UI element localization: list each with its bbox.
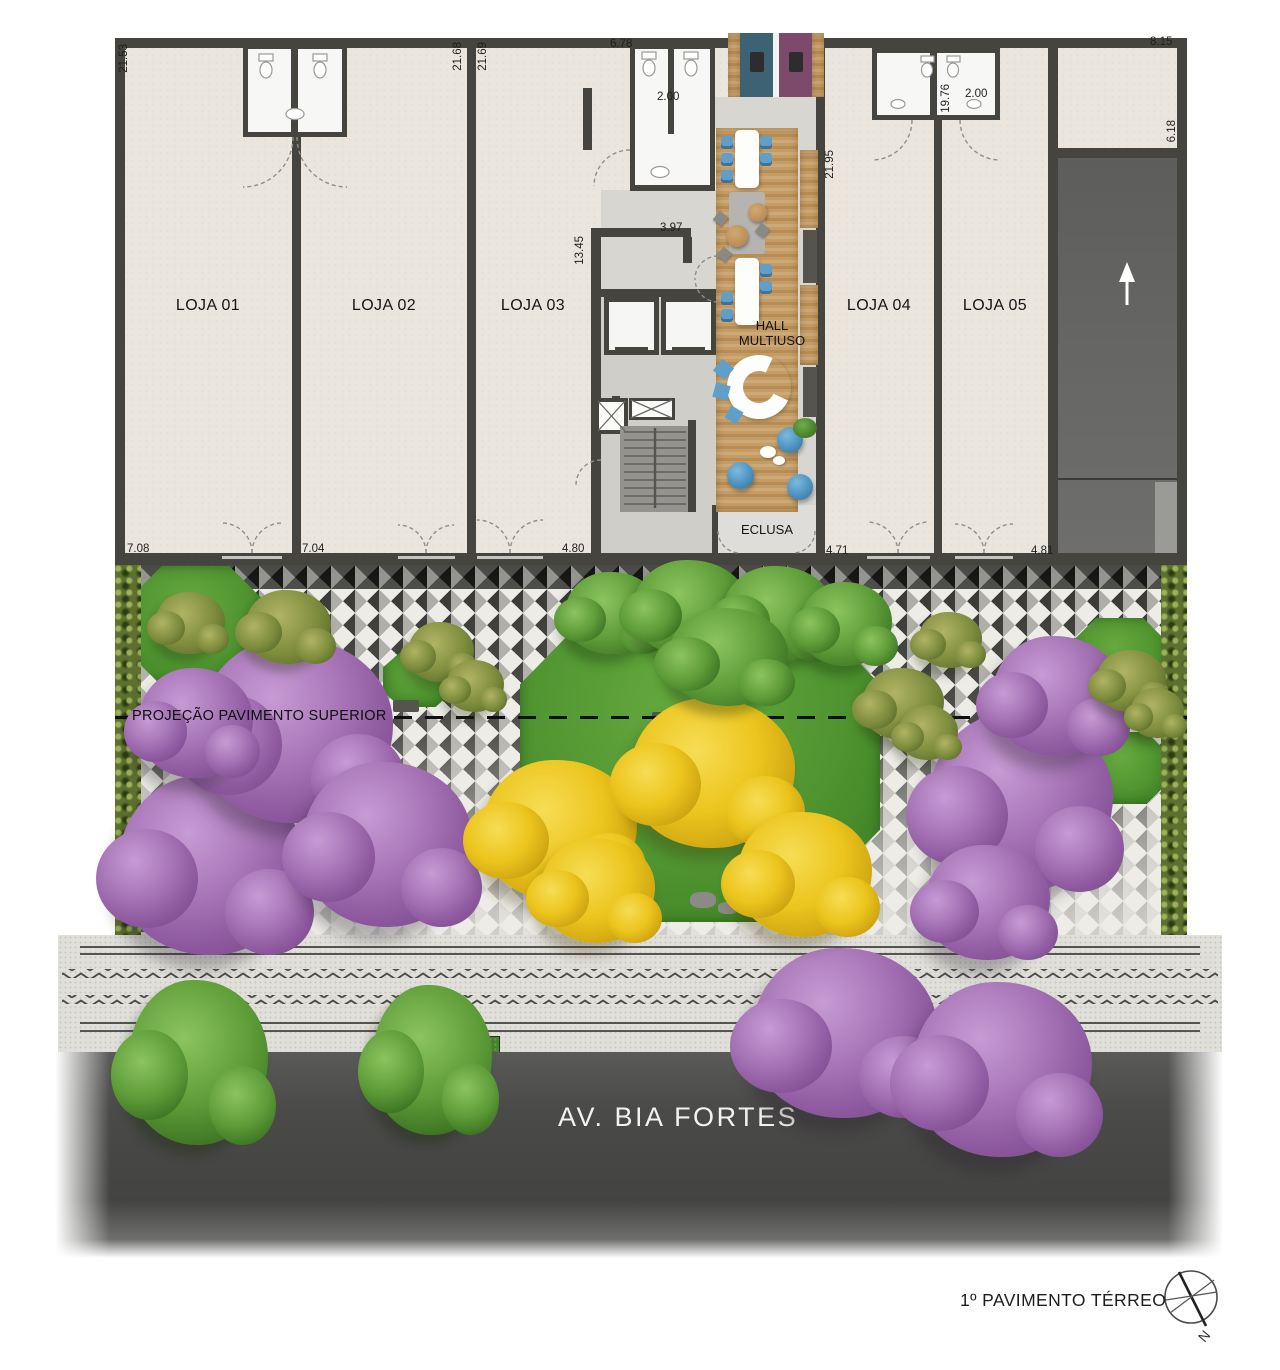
panel bbox=[803, 367, 817, 417]
chair bbox=[721, 292, 733, 305]
ramp-line bbox=[1058, 478, 1177, 480]
elevator-door bbox=[672, 347, 705, 351]
room-label-loja-03: LOJA 03 bbox=[488, 297, 578, 315]
shaft bbox=[629, 398, 675, 420]
room-label-loja-02: LOJA 02 bbox=[339, 297, 429, 315]
room-label-eclusa: ECLUSA bbox=[717, 522, 817, 537]
dimension-label: 13.45 bbox=[574, 236, 586, 265]
wall-elevator-top bbox=[601, 289, 718, 297]
dimension-label: 8.15 bbox=[1150, 36, 1172, 48]
wall-loja4-loja5 bbox=[934, 48, 942, 553]
room-label-loja-04: LOJA 04 bbox=[834, 297, 924, 315]
shrub-olive bbox=[245, 590, 331, 664]
wall bbox=[115, 38, 125, 565]
dimension-label: 21.53 bbox=[118, 44, 130, 73]
plant bbox=[793, 418, 817, 438]
tree-purple bbox=[912, 982, 1092, 1157]
pouf bbox=[787, 474, 813, 500]
wall-core-left bbox=[591, 228, 601, 553]
tree-yellow bbox=[737, 812, 872, 937]
storefront-glass bbox=[398, 556, 455, 559]
pet-bed bbox=[760, 446, 776, 458]
pet-bowl bbox=[773, 456, 785, 465]
wall bbox=[1177, 38, 1187, 565]
restroom-divider bbox=[930, 48, 937, 120]
wall-loja2-loja3 bbox=[467, 48, 476, 553]
storefront-glass bbox=[477, 556, 543, 559]
dimension-label: 21.69 bbox=[477, 42, 489, 71]
chair bbox=[760, 136, 772, 149]
dimension-label: 2.00 bbox=[657, 91, 679, 103]
dimension-label: 6.18 bbox=[1166, 120, 1178, 142]
dimension-label: 7.08 bbox=[127, 543, 149, 555]
projection-label: PROJEÇÃO PAVIMENTO SUPERIOR bbox=[132, 708, 387, 724]
wall bbox=[115, 553, 1187, 565]
storefront-glass bbox=[222, 556, 282, 559]
tree-yellow bbox=[540, 838, 655, 943]
shrub-olive bbox=[1130, 688, 1184, 738]
dimension-label: 4.80 bbox=[562, 543, 584, 555]
table bbox=[735, 130, 759, 188]
booth-chair bbox=[750, 52, 764, 72]
shrub-olive bbox=[918, 612, 982, 668]
chair bbox=[760, 281, 772, 294]
core-corridor bbox=[601, 434, 620, 553]
panel bbox=[803, 230, 817, 283]
road-edge-fade bbox=[55, 1052, 110, 1258]
stone bbox=[690, 892, 716, 908]
dimension-label: 19.76 bbox=[940, 84, 952, 113]
shrub-olive bbox=[446, 660, 504, 712]
bench bbox=[800, 150, 818, 228]
compass-north-label: N bbox=[1195, 1327, 1214, 1345]
shrub-olive bbox=[898, 706, 958, 760]
chair bbox=[721, 170, 733, 183]
room-label-loja-05: LOJA 05 bbox=[950, 297, 1040, 315]
chair bbox=[721, 153, 733, 166]
road-edge-fade bbox=[1168, 1052, 1223, 1258]
table bbox=[735, 258, 759, 325]
round-table bbox=[748, 203, 767, 222]
pouf bbox=[727, 462, 754, 489]
restroom-divider bbox=[668, 44, 674, 134]
street-name-label: AV. BIA FORTES bbox=[558, 1102, 798, 1133]
booth-chair bbox=[789, 52, 803, 72]
booth-desk bbox=[812, 33, 824, 97]
wall-ramp-top bbox=[1058, 148, 1177, 158]
room-label-hall-line2: MULTIUSO bbox=[722, 333, 822, 348]
dimension-label: 3.97 bbox=[660, 222, 682, 234]
elevator-door bbox=[615, 347, 648, 351]
tree-purple bbox=[925, 845, 1050, 960]
booth-desk bbox=[728, 33, 740, 97]
shrub-olive bbox=[155, 592, 225, 654]
shrub-green bbox=[668, 608, 788, 706]
restroom-divider bbox=[291, 44, 298, 137]
chair bbox=[721, 136, 733, 149]
wall-stair-right bbox=[688, 420, 696, 512]
wall-loja5-ramp bbox=[1048, 48, 1058, 553]
round-table bbox=[726, 225, 748, 247]
dimension-label: 4.71 bbox=[826, 545, 848, 557]
hedge bbox=[1161, 565, 1187, 937]
wall-stub bbox=[683, 237, 692, 263]
tree-purple bbox=[302, 762, 472, 927]
elevator-lobby-floor bbox=[601, 190, 718, 297]
dimension-label: 4.81 bbox=[1031, 545, 1053, 557]
tree-green-street bbox=[128, 980, 268, 1145]
storefront-glass bbox=[867, 556, 930, 559]
page-title: 1º PAVIMENTO TÉRREO bbox=[960, 1290, 1166, 1311]
bench bbox=[393, 700, 419, 712]
room-label-loja-01: LOJA 01 bbox=[163, 297, 253, 315]
chair bbox=[760, 153, 772, 166]
room-label-hall-line1: HALL bbox=[722, 318, 822, 333]
dimension-label: 7.04 bbox=[302, 543, 324, 555]
wall-stub bbox=[583, 88, 592, 150]
stairwell bbox=[620, 426, 688, 512]
hall-entry-floor bbox=[713, 97, 824, 128]
dimension-label: 21.68 bbox=[452, 42, 464, 71]
chair bbox=[760, 264, 772, 277]
storefront-glass bbox=[955, 556, 1013, 559]
compass-icon bbox=[1165, 1271, 1217, 1326]
dimension-label: 6.78 bbox=[610, 38, 632, 50]
shrub-green bbox=[800, 582, 892, 666]
dimension-label: 2.00 bbox=[965, 88, 987, 100]
ramp-platform bbox=[1155, 482, 1177, 553]
tree-green-street bbox=[372, 985, 492, 1135]
dimension-label: 21.95 bbox=[824, 150, 836, 179]
